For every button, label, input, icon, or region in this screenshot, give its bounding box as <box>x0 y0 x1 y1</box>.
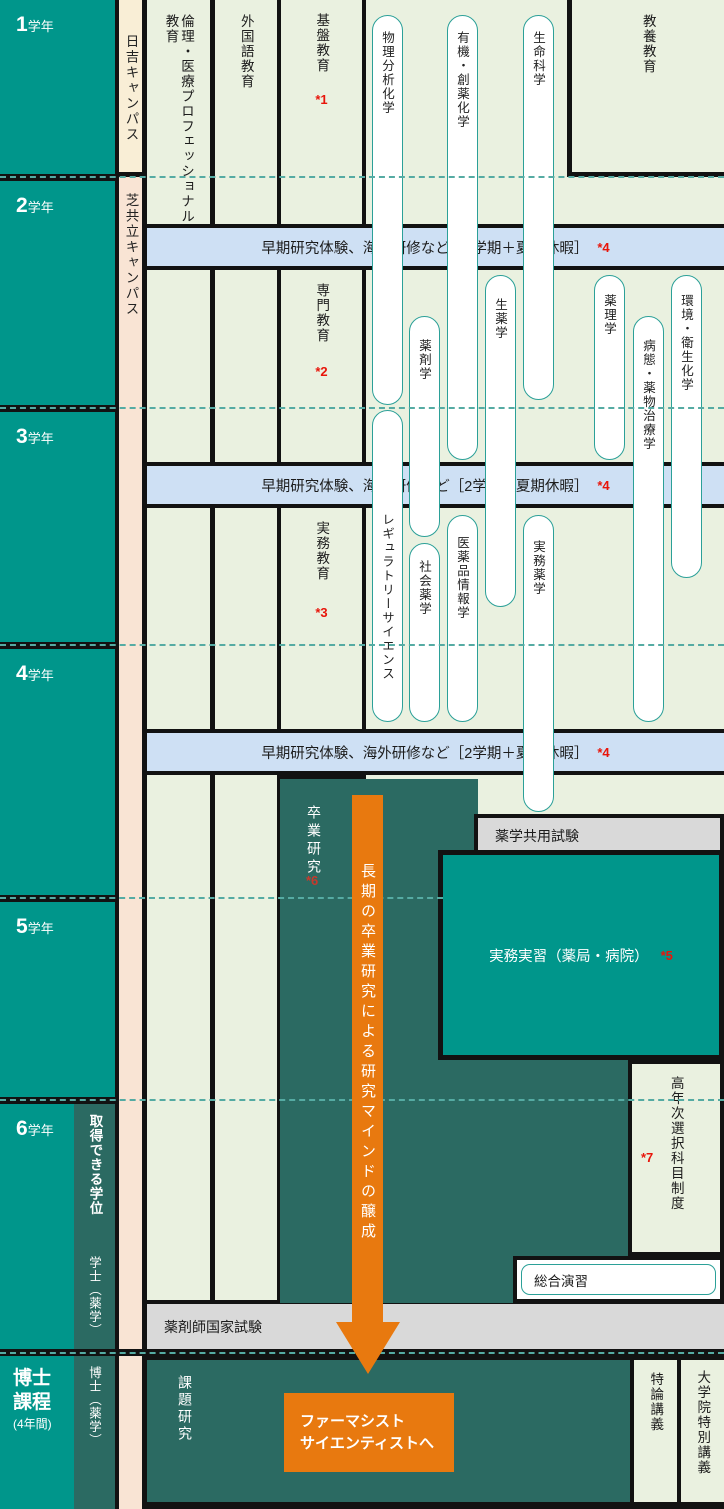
research-mind-arrow-shaft: 長期の卒業研究による研究マインドの醸成 <box>352 795 383 1323</box>
degree-header: 取得できる学位 <box>85 1114 105 1216</box>
degree-doctor: 博士（薬学） <box>85 1366 104 1447</box>
pill-drug-information: 医薬品情報学 <box>447 515 478 722</box>
clinical-training-note: *5 <box>661 948 673 963</box>
pill-practical-pharmacy: 実務薬学 <box>523 515 554 812</box>
pill-pharmacology: 薬理学 <box>594 275 625 460</box>
campus-shibakyoritsu: 芝共立キャンパス <box>119 177 142 1509</box>
year-boundary-dash-3 <box>0 644 724 646</box>
research-band-1: 早期研究体験、海外研修など［2学期＋夏期休暇］ *4 <box>147 224 724 270</box>
degree-column-doctor: 博士（薬学） <box>74 1356 115 1509</box>
national-exam-label: 薬剤師国家試験 <box>147 1317 262 1337</box>
pill-pharmacognosy: 生薬学 <box>485 275 516 607</box>
research-mind-arrow-text: 長期の卒業研究による研究マインドの醸成 <box>357 795 378 1323</box>
pill-pathophysiology-pharmacotherapy: 病態・薬物治療学 <box>633 316 664 722</box>
doctoral-label: 博士課程 <box>13 1367 59 1415</box>
specialized-education-box: 専門教育 *2 <box>281 270 362 462</box>
comprehensive-seminar-field: 総合演習 <box>521 1264 716 1295</box>
cbt-exam-label: 薬学共用試験 <box>478 826 579 846</box>
curriculum-diagram: 1学年 2学年 3学年 4学年 5学年 6学年 博士課程 (4年間) 取得できる… <box>0 0 724 1509</box>
year-6-block: 6学年 <box>0 1104 74 1349</box>
graduation-research-label: 卒業研究 <box>304 805 324 877</box>
year-6-label: 6 <box>16 1117 28 1140</box>
year-boundary-dash-1 <box>0 176 724 178</box>
year-3-block: 3学年 <box>0 412 115 642</box>
year-2-block: 2学年 <box>0 181 115 405</box>
year-5-block: 5学年 <box>0 902 115 1097</box>
clinical-training-box: 実務実習（薬局・病院） *5 <box>438 850 724 1060</box>
ethics-label: 倫理・医療プロフェッショナル教育 <box>163 0 194 224</box>
goal-line1: ファーマシスト <box>300 1411 454 1433</box>
graduate-special-lecture-label: 大学院特別講義 <box>695 1360 711 1502</box>
degree-column-bachelor: 取得できる学位 学士（薬学） <box>74 1104 115 1349</box>
foundation-education-box: 基盤教育 *1 <box>281 0 362 224</box>
year-1-label: 1 <box>16 13 28 36</box>
practical-education-box: 実務教育 *3 <box>281 508 362 729</box>
national-exam-bar: 薬剤師国家試験 <box>147 1304 724 1349</box>
liberal-arts-label: 教養教育 <box>640 0 656 172</box>
doctoral-duration: (4年間) <box>13 1417 52 1431</box>
foreign-language-column-seg4 <box>215 775 277 1300</box>
ethics-column-seg4 <box>147 775 210 1300</box>
senior-elective-label: 高年次選択科目制度 <box>668 1064 684 1252</box>
pharmacist-scientist-goal-box: ファーマシスト サイエンティストへ <box>284 1393 454 1472</box>
campus-hiyoshi-label: 日吉キャンパス <box>121 34 141 143</box>
pill-organic-medicinal-chemistry: 有機・創薬化学 <box>447 15 478 460</box>
year-4-label: 4 <box>16 662 28 685</box>
research-band-3: 早期研究体験、海外研修など［2学期＋夏期休暇］ *4 <box>147 729 724 775</box>
degree-bachelor: 学士（薬学） <box>85 1256 104 1337</box>
campus-shibakyoritsu-label: 芝共立キャンパス <box>121 193 141 317</box>
graduation-research-extension <box>478 1058 628 1258</box>
research-band-note: *4 <box>597 478 609 493</box>
ethics-column-seg3 <box>147 508 210 729</box>
pill-physical-analytical-chemistry: 物理分析化学 <box>372 15 403 405</box>
campus-hiyoshi: 日吉キャンパス <box>119 0 142 172</box>
year-boundary-dash-2 <box>0 407 724 409</box>
comprehensive-seminar-box: 総合演習 <box>513 1256 724 1303</box>
graduation-research-extension2 <box>478 1256 517 1303</box>
clinical-training-label: 実務実習（薬局・病院） <box>489 945 649 966</box>
research-mind-arrow-head <box>336 1322 400 1374</box>
year-5-label: 5 <box>16 915 28 938</box>
comprehensive-seminar-label: 総合演習 <box>522 1270 588 1290</box>
pill-environmental-hygiene-chemistry: 環境・衛生化学 <box>671 275 702 578</box>
research-band-note: *4 <box>597 745 609 760</box>
graduate-special-lecture-column: 大学院特別講義 <box>681 1360 724 1502</box>
tokuron-lecture-label: 特論講義 <box>648 1360 664 1502</box>
research-band-note: *4 <box>597 240 609 255</box>
foreign-language-column-seg3 <box>215 508 277 729</box>
ethics-column-seg2 <box>147 270 210 462</box>
pill-pharmaceutics: 薬剤学 <box>409 316 440 537</box>
foundation-note: *1 <box>315 92 327 107</box>
year-3-label: 3 <box>16 425 28 448</box>
specialized-note: *2 <box>315 364 327 379</box>
year-4-block: 4学年 <box>0 649 115 895</box>
foreign-language-column: 外国語教育 <box>215 0 277 224</box>
foreign-language-label: 外国語教育 <box>238 0 254 224</box>
practical-note: *3 <box>315 605 327 620</box>
pill-regulatory-science: レギュラトリーサイエンス <box>372 410 403 722</box>
senior-elective-box: 高年次選択科目制度 *7 <box>628 1060 724 1256</box>
liberal-arts-box: 教養教育 <box>567 0 724 177</box>
graduation-research-note: *6 <box>306 873 318 888</box>
foreign-language-column-seg2 <box>215 270 277 462</box>
ethics-column: 倫理・医療プロフェッショナル教育 <box>147 0 210 224</box>
pill-social-pharmacy: 社会薬学 <box>409 543 440 722</box>
year-2-label: 2 <box>16 194 28 217</box>
year-1-block: 1学年 <box>0 0 115 174</box>
tokuron-lecture-column: 特論講義 <box>634 1360 677 1502</box>
doctoral-research-label: 課題研究 <box>175 1375 195 1443</box>
pill-life-science: 生命科学 <box>523 15 554 400</box>
doctoral-block: 博士課程 (4年間) <box>0 1356 74 1509</box>
goal-line2: サイエンティストへ <box>300 1433 454 1455</box>
senior-elective-note: *7 <box>641 1150 653 1165</box>
foundation-label: 基盤教育 <box>314 0 330 224</box>
